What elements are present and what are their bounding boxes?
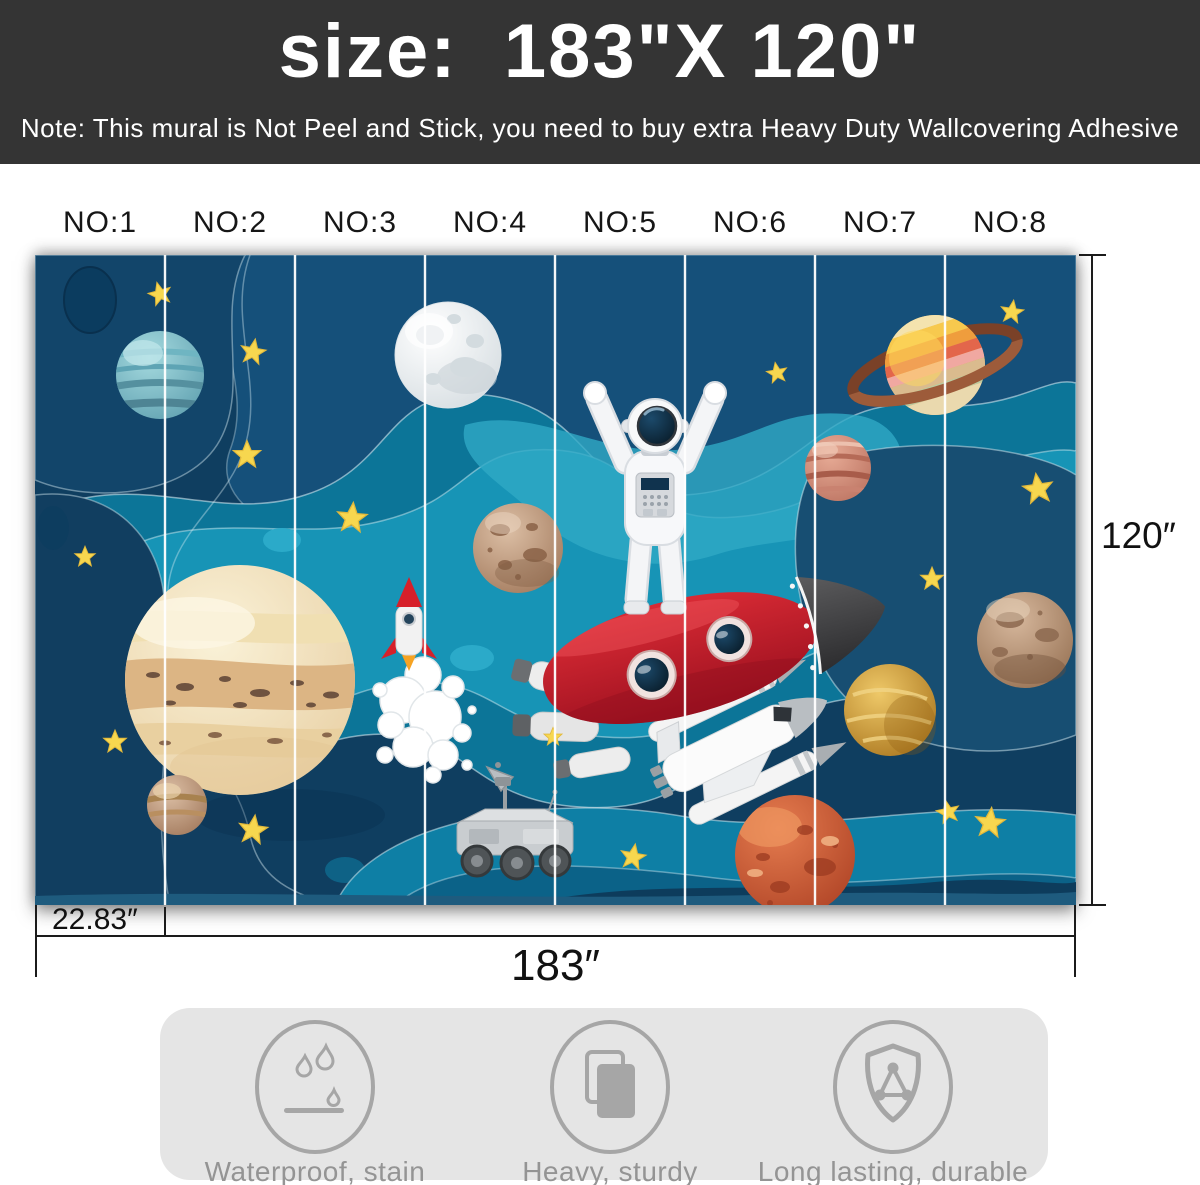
feature-waterproof: Waterproof, stain resistant bbox=[165, 1018, 465, 1185]
waterproof-icon bbox=[250, 1018, 380, 1156]
brown-planet-icon bbox=[977, 592, 1073, 688]
golden-planet-icon bbox=[844, 664, 936, 756]
feature-durable: Long lasting, durable bbox=[743, 1018, 1043, 1185]
feature-label: Long lasting, durable bbox=[743, 1156, 1043, 1185]
size-title: size: 183"X 120" bbox=[0, 8, 1200, 95]
size-banner: size: 183"X 120" Note: This mural is Not… bbox=[0, 0, 1200, 164]
panel-label-5: NO:5 bbox=[583, 206, 657, 240]
panel-label-1: NO:1 bbox=[63, 206, 137, 240]
rocky-planet-icon bbox=[473, 503, 563, 593]
adhesive-note: Note: This mural is Not Peel and Stick, … bbox=[0, 113, 1200, 144]
panel-label-6: NO:6 bbox=[713, 206, 787, 240]
features-panel: Waterproof, stain resistant Heavy, sturd… bbox=[160, 1008, 1048, 1180]
height-label: 120″ bbox=[1101, 515, 1176, 557]
panel-label-4: NO:4 bbox=[453, 206, 527, 240]
moon-icon bbox=[395, 302, 501, 408]
height-tick-top bbox=[1079, 254, 1106, 256]
tan-planet-icon bbox=[147, 775, 207, 835]
feature-label: Waterproof, stain resistant bbox=[165, 1156, 465, 1185]
panel-label-3: NO:3 bbox=[323, 206, 397, 240]
product-size-infographic: size: 183"X 120" Note: This mural is Not… bbox=[0, 0, 1200, 1185]
panel-label-2: NO:2 bbox=[193, 206, 267, 240]
feature-label: Heavy, sturdy bbox=[460, 1156, 760, 1185]
uranus-icon bbox=[116, 331, 204, 419]
height-dimension-line bbox=[1091, 254, 1093, 906]
heavy-sturdy-icon bbox=[545, 1018, 675, 1156]
feature-heavy-sturdy: Heavy, sturdy bbox=[460, 1018, 760, 1185]
panel-label-7: NO:7 bbox=[843, 206, 917, 240]
height-tick-bottom bbox=[1079, 904, 1106, 906]
mural-preview bbox=[35, 255, 1076, 905]
total-width-label: 183″ bbox=[35, 941, 1076, 991]
durable-shield-icon bbox=[828, 1018, 958, 1156]
panel-width-tick bbox=[164, 907, 166, 937]
panel-label-8: NO:8 bbox=[973, 206, 1047, 240]
width-dimension-line bbox=[35, 935, 1076, 937]
panel-width-label: 22.83″ bbox=[52, 903, 138, 937]
